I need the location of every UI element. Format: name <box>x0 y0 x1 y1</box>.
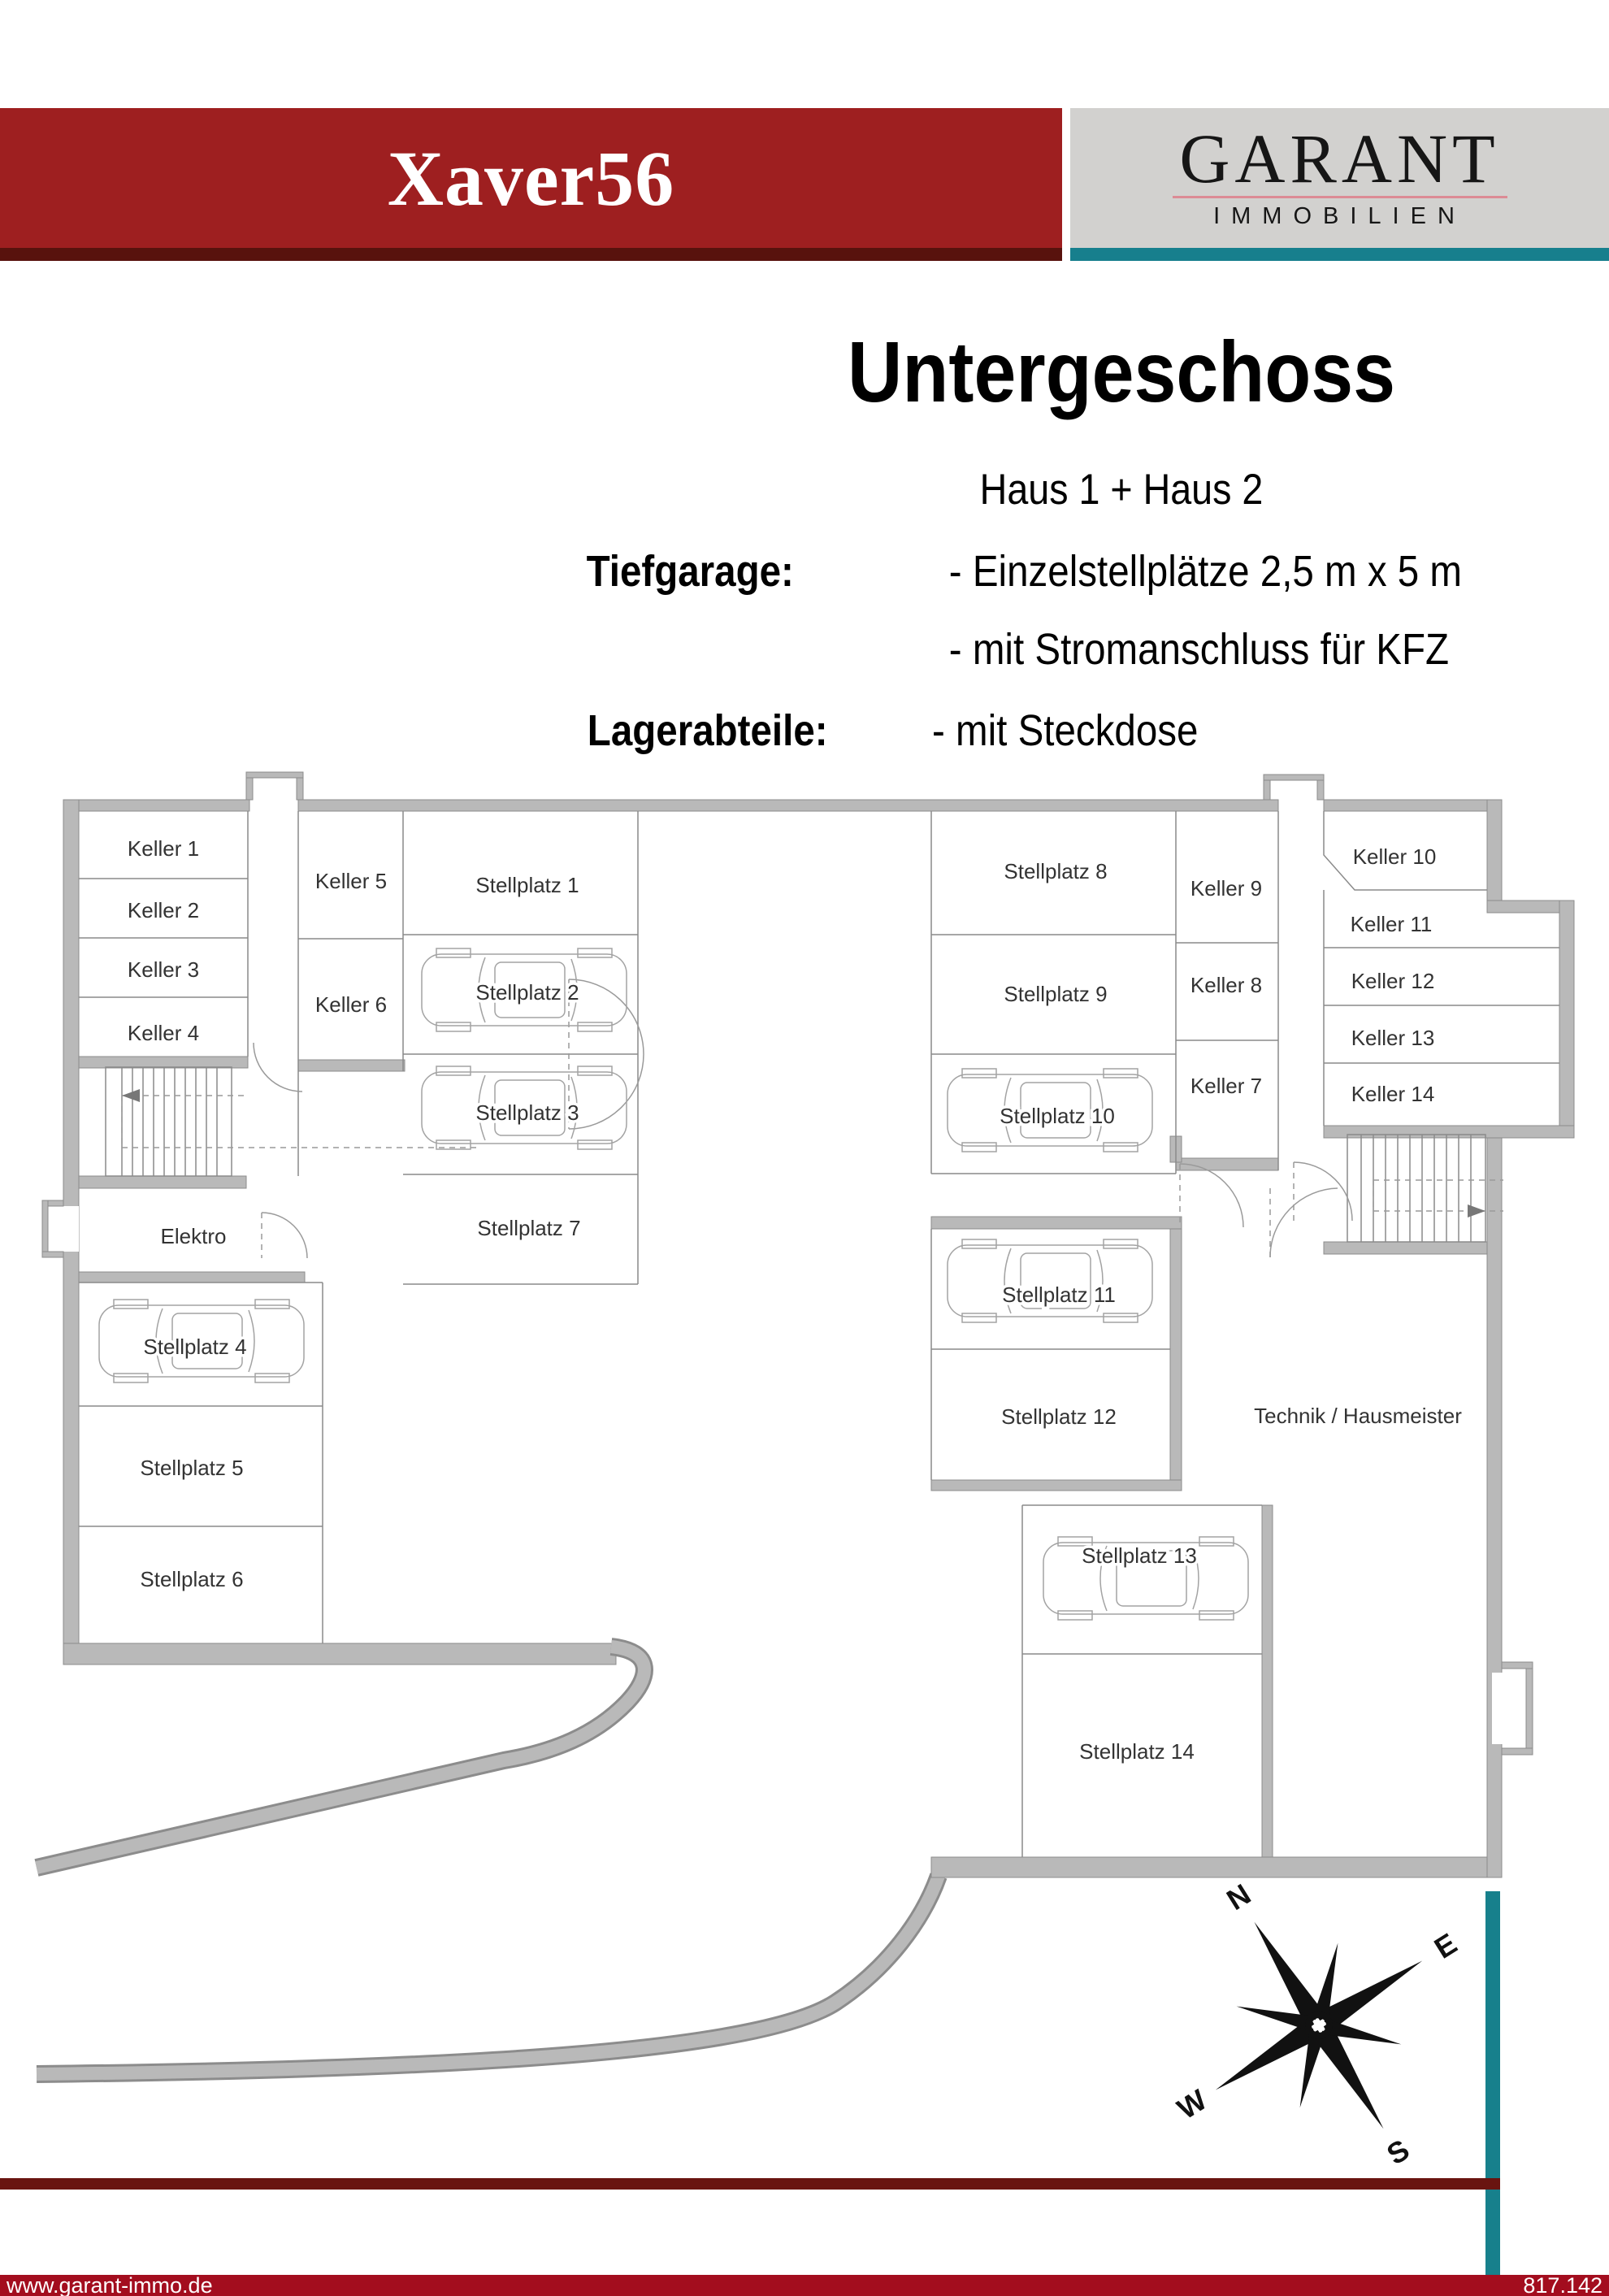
room-label: Keller 5 <box>315 869 387 893</box>
room-label: Keller 3 <box>128 957 199 982</box>
compass-n-label: N <box>1221 1877 1256 1917</box>
room-label: Keller 6 <box>315 992 387 1017</box>
room-label: Keller 4 <box>128 1021 199 1045</box>
room-label: Keller 13 <box>1351 1026 1435 1050</box>
room-label: Stellplatz 12 <box>1001 1404 1117 1429</box>
partition-lines <box>79 811 1559 1857</box>
room-label: Stellplatz 1 <box>475 873 579 897</box>
room-label: Stellplatz 10 <box>1000 1104 1115 1128</box>
footer-bar: www.garant-immo.de 817.142 <box>0 2275 1609 2296</box>
room-label: Stellplatz 14 <box>1079 1739 1195 1764</box>
footer-plan-code: 817.142 <box>1523 2273 1602 2296</box>
footer-website: www.garant-immo.de <box>7 2273 213 2296</box>
dark-red-divider <box>0 2178 1500 2190</box>
room-label: Stellplatz 6 <box>140 1567 243 1591</box>
door-arcs <box>254 979 1352 1258</box>
room-label: Stellplatz 9 <box>1004 982 1107 1006</box>
room-label: Keller 7 <box>1190 1074 1262 1098</box>
compass-star <box>1151 1857 1486 2193</box>
car-icon <box>948 1239 1152 1322</box>
floorplan: Keller 1 Keller 2 Keller 3 Keller 4 Kell… <box>0 0 1609 2296</box>
room-label: Keller 1 <box>128 836 199 861</box>
room-label: Technik / Hausmeister <box>1254 1404 1462 1428</box>
room-label: Stellplatz 7 <box>477 1216 580 1240</box>
room-label: Keller 12 <box>1351 969 1435 993</box>
room-label: Stellplatz 5 <box>140 1456 243 1480</box>
room-label: Stellplatz 8 <box>1004 859 1107 883</box>
teal-accent-bar <box>1485 1891 1500 2275</box>
room-label: Stellplatz 3 <box>475 1100 579 1125</box>
staircase-left <box>122 1067 479 1176</box>
room-label: Stellplatz 13 <box>1082 1543 1197 1568</box>
compass-w-label: W <box>1171 2083 1212 2126</box>
room-label: Keller 11 <box>1351 912 1433 936</box>
staircase-right <box>1361 1135 1503 1242</box>
room-label: Stellplatz 11 <box>1002 1283 1116 1307</box>
room-label: Stellplatz 4 <box>143 1335 246 1359</box>
room-label: Keller 9 <box>1190 876 1262 901</box>
room-label: Elektro <box>161 1224 227 1248</box>
compass-s-label: S <box>1381 2133 1415 2171</box>
compass-e-label: E <box>1429 1926 1463 1964</box>
page: Xaver56 GARANT IMMOBILIEN Untergeschoss … <box>0 0 1609 2296</box>
room-label: Keller 2 <box>128 898 199 922</box>
room-label: Keller 10 <box>1353 844 1437 869</box>
stair-direction-arrow <box>1468 1204 1485 1217</box>
stair-direction-arrow <box>122 1089 140 1102</box>
room-label: Stellplatz 2 <box>475 980 579 1005</box>
room-label: Keller 8 <box>1190 973 1262 997</box>
room-label: Keller 14 <box>1351 1082 1435 1106</box>
